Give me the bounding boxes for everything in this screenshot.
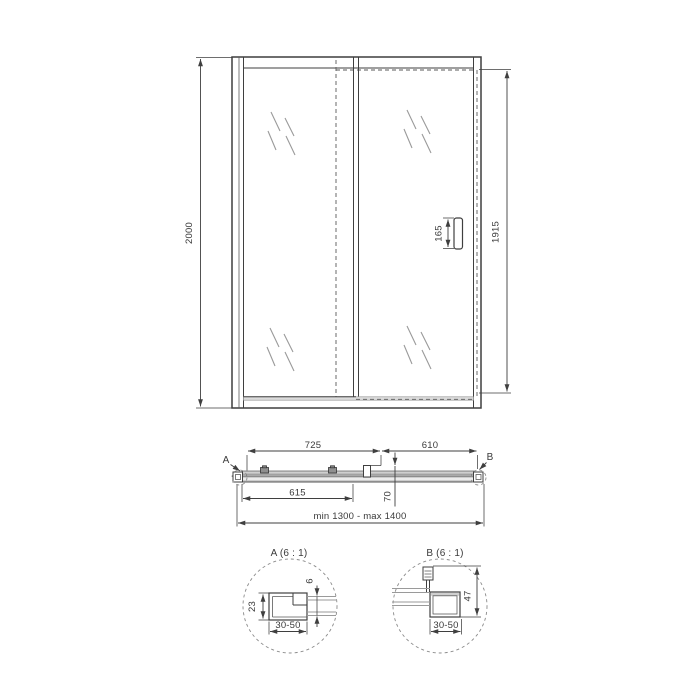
dimension-width-range: min 1300 - max 1400 [237, 484, 484, 527]
detail-a-view: A (6 : 1) 23 6 30-50 [243, 548, 337, 653]
dim-glass-width-label: 615 [289, 488, 305, 499]
wall-profile-b [474, 472, 484, 482]
door-handle [454, 218, 463, 249]
detail-a-glass-lines [307, 597, 336, 616]
glass-panels-band [242, 476, 475, 482]
dimension-span-right: 610 [382, 440, 478, 469]
stopper-bracket [364, 466, 371, 478]
dimension-glass-width: 615 [242, 484, 353, 502]
dim-profile-height-label: 47 [463, 591, 474, 602]
wall-profile-a [233, 472, 243, 482]
dim-door-height-label: 1915 [491, 221, 502, 243]
dimension-overall-height: 2000 [184, 58, 232, 409]
dimension-adjust-range-a: 30-50 [269, 620, 307, 635]
dim-adjust-range-a-label: 30-50 [275, 620, 300, 631]
dim-handle-label: 165 [434, 225, 445, 241]
dimension-span-left: 725 [247, 440, 381, 471]
shower-door-technical-drawing: 165 2000 1915 [0, 0, 700, 700]
detail-a-marker-label: A [223, 455, 230, 466]
detail-a-profile-section [269, 593, 307, 620]
dim-profile-depth-label: 23 [247, 601, 258, 612]
bottom-rail [244, 397, 474, 400]
detail-b-profile-section [430, 592, 460, 617]
roller [261, 466, 269, 473]
detail-b-glass-lines [392, 589, 430, 606]
detail-b-view: B (6 : 1) 47 30-50 [392, 548, 487, 653]
detail-b-title: B (6 : 1) [426, 548, 463, 559]
dim-adjust-range-b-label: 30-50 [433, 620, 458, 631]
dim-width-range-label: min 1300 - max 1400 [313, 511, 406, 522]
top-track [242, 471, 475, 474]
dimension-door-height: 1915 [479, 70, 511, 394]
dim-span-right-label: 610 [422, 440, 438, 451]
plan-view: 725 610 70 615 min 1300 - max 1400 A [223, 440, 494, 527]
dimension-adjust-range-b: 30-50 [430, 619, 462, 635]
detail-b-marker-label: B [487, 452, 494, 463]
dim-overall-height-label: 2000 [184, 222, 195, 244]
drawing-canvas: 165 2000 1915 [0, 0, 700, 700]
dim-span-left-label: 725 [305, 440, 321, 451]
dim-depth-label: 70 [383, 491, 394, 502]
dimension-profile-depth: 23 [247, 593, 269, 620]
dim-glass-thickness-label: 6 [305, 578, 316, 583]
detail-a-title: A (6 : 1) [271, 548, 308, 559]
front-view: 165 2000 1915 [184, 57, 511, 408]
roller [329, 466, 337, 473]
